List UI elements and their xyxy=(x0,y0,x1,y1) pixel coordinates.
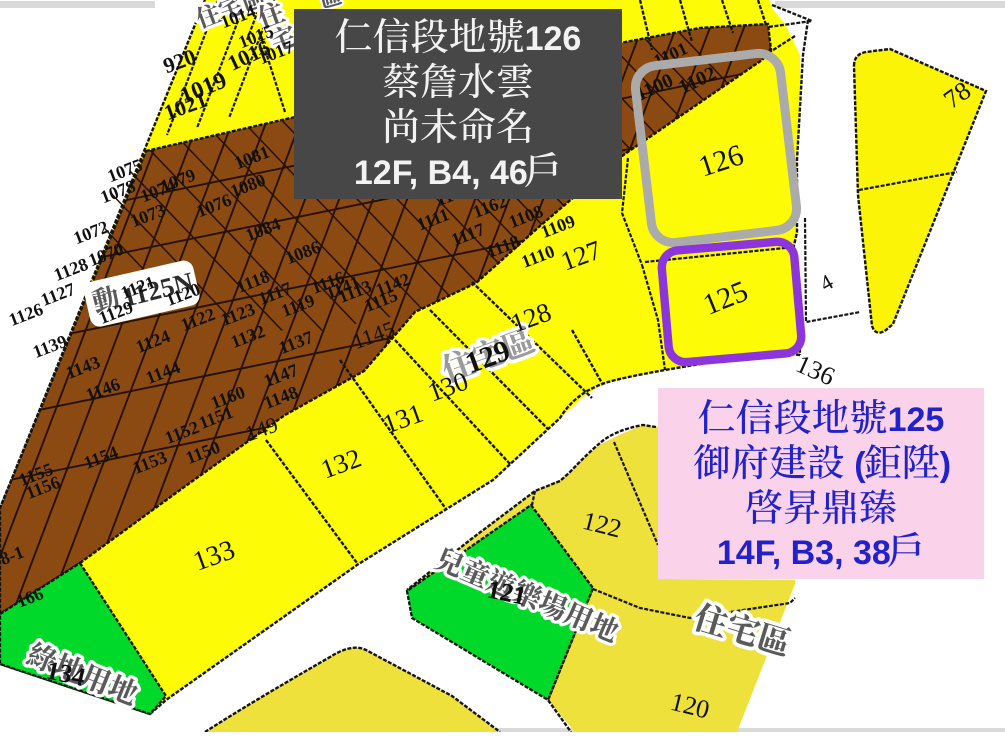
svg-text:125: 125 xyxy=(888,401,945,439)
svg-text:14F, B3, 38: 14F, B3, 38 xyxy=(717,534,891,572)
svg-text:(: ( xyxy=(854,446,866,484)
svg-text:126: 126 xyxy=(525,20,582,58)
svg-text:12F, B4, 46: 12F, B4, 46 xyxy=(354,154,528,192)
svg-text:): ) xyxy=(940,446,951,484)
